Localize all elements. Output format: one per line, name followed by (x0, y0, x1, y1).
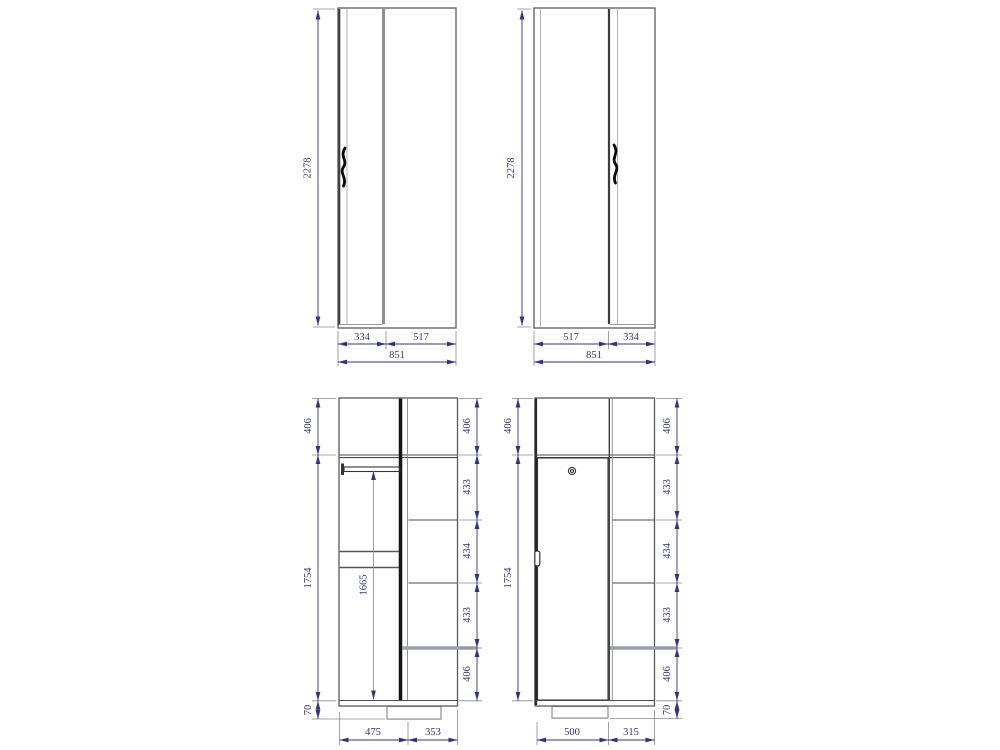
door-handle-icon (535, 551, 540, 566)
dimension-label: 1754 (303, 567, 314, 589)
technical-drawing-canvas: 2278 334 517 851 2278 517 334 851 (0, 0, 1000, 750)
dimension-label: 315 (623, 727, 639, 738)
dimension-label: 433 (462, 479, 473, 495)
dimension-label: 353 (425, 727, 441, 738)
dimension-label: 500 (564, 727, 580, 738)
dimension-label: 433 (662, 479, 673, 495)
dimension-label: 433 (662, 607, 673, 623)
dimension-label: 517 (563, 332, 579, 343)
dimension-label: 406 (462, 418, 473, 434)
dimension-label: 434 (462, 542, 473, 559)
dimension-label: 851 (389, 350, 405, 361)
dimension-label: 851 (586, 350, 602, 361)
dimension-label: 334 (354, 332, 371, 343)
dimension-label: 70 (662, 705, 673, 716)
dimension-label: 475 (365, 727, 381, 738)
dimension-label: 517 (413, 332, 429, 343)
dimension-label: 406 (662, 666, 673, 682)
dimension-label: 70 (303, 705, 314, 716)
dimension-label: 2278 (506, 158, 517, 179)
dimension-label: 433 (462, 607, 473, 623)
dimension-label: 406 (303, 418, 314, 434)
dimension-label: 434 (662, 542, 673, 559)
dimension-label: 1665 (359, 575, 370, 596)
dimension-label: 406 (662, 418, 673, 434)
dimension-label: 334 (623, 332, 640, 343)
dimension-label: 406 (503, 418, 514, 434)
dimension-label: 406 (462, 666, 473, 682)
dimension-label: 1754 (503, 567, 514, 589)
dimension-label: 2278 (303, 158, 314, 179)
background (0, 0, 1000, 750)
wardrobe-technical-drawing: 2278 334 517 851 2278 517 334 851 (0, 0, 1000, 750)
